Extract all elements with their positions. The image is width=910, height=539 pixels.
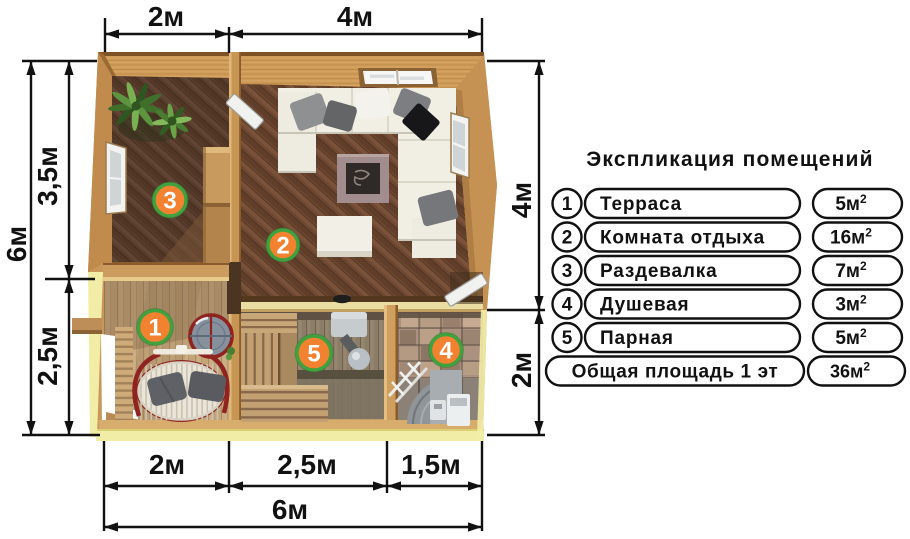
- svg-text:2м: 2м: [506, 352, 537, 388]
- svg-text:1: 1: [562, 194, 573, 215]
- svg-text:Душевая: Душевая: [600, 295, 689, 316]
- svg-text:2,5м: 2,5м: [32, 326, 63, 386]
- svg-text:Парная: Парная: [600, 328, 674, 349]
- svg-text:3: 3: [163, 188, 176, 215]
- svg-text:Раздевалка: Раздевалка: [600, 261, 717, 282]
- svg-text:Терраса: Терраса: [600, 194, 682, 215]
- svg-text:5: 5: [307, 341, 320, 368]
- svg-text:3,5м: 3,5м: [32, 146, 63, 206]
- svg-text:2м: 2м: [149, 449, 185, 480]
- svg-text:4м: 4м: [506, 182, 537, 218]
- svg-text:2: 2: [276, 233, 289, 260]
- svg-text:1,5м: 1,5м: [401, 449, 461, 480]
- svg-text:3: 3: [562, 261, 573, 282]
- svg-text:Общая площадь 1 эт: Общая площадь 1 эт: [572, 362, 779, 383]
- svg-text:4: 4: [562, 295, 573, 316]
- svg-text:Экспликация помещений: Экспликация помещений: [586, 148, 873, 171]
- svg-text:2: 2: [562, 228, 573, 249]
- svg-text:Комната отдыха: Комната отдыха: [600, 228, 765, 249]
- svg-text:5: 5: [562, 328, 573, 349]
- svg-text:6м: 6м: [272, 494, 308, 525]
- svg-text:4: 4: [439, 338, 453, 365]
- svg-text:4м: 4м: [337, 1, 373, 32]
- svg-text:1: 1: [148, 315, 161, 342]
- svg-text:6м: 6м: [1, 226, 32, 262]
- svg-text:2м: 2м: [148, 1, 184, 32]
- svg-text:2,5м: 2,5м: [277, 449, 337, 480]
